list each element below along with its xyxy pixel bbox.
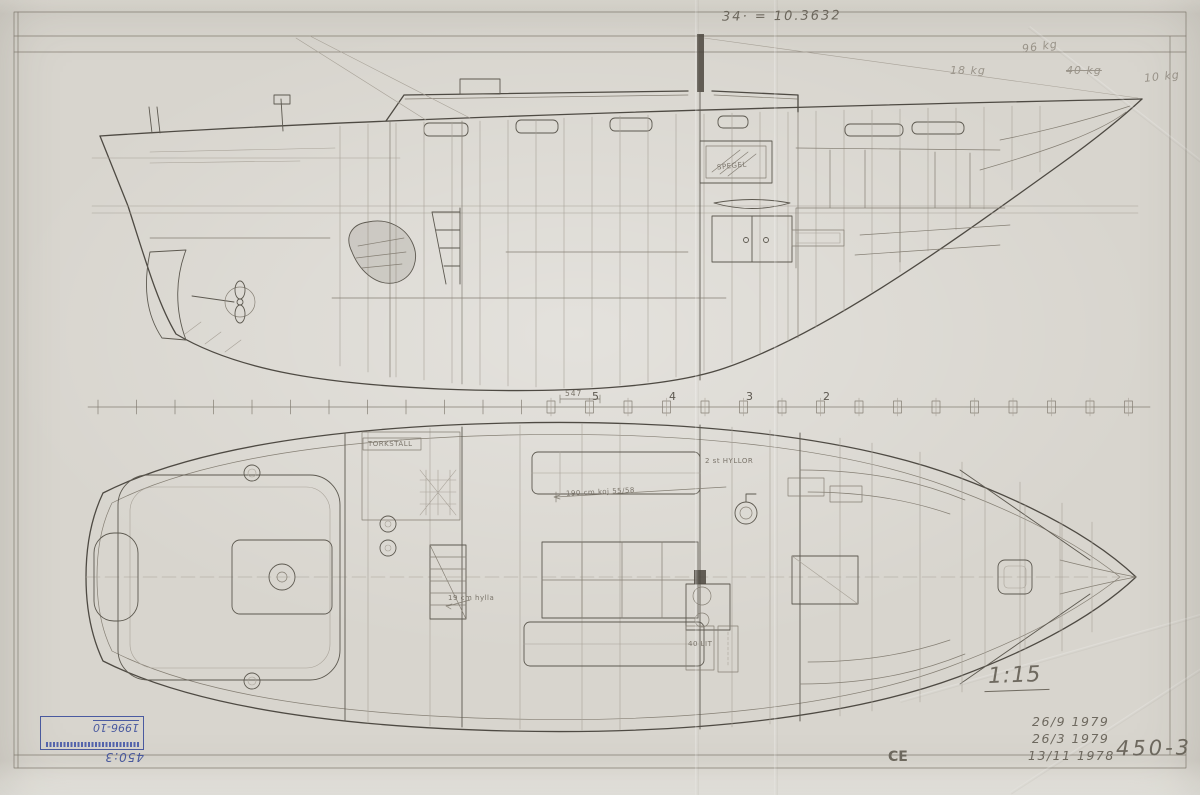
drawing-number: 450-3 (1116, 735, 1192, 760)
drawing-date: 13/11 1978 (1028, 748, 1115, 763)
plan-view-drawing (86, 422, 1136, 731)
station-line (88, 395, 1150, 416)
toilet-room (362, 432, 460, 556)
shelf-dim-label: 19 cm hylla (448, 594, 494, 602)
station-number: 3 (746, 390, 754, 403)
stamp-number: 450:3 (40, 750, 144, 764)
drawing-sheet: 34· = 10.3632 96 kg 18 kg 40 kg 10 kg 1:… (0, 0, 1200, 795)
profile-view-drawing (92, 34, 1142, 391)
stairs-plan (430, 545, 466, 619)
mast (697, 34, 704, 92)
engine (349, 221, 416, 283)
tank-label: 40 LIT (688, 640, 712, 648)
revision-date: 26/3 1979 (1032, 731, 1109, 746)
border-frame (14, 12, 1186, 768)
station-number: 5 (592, 390, 600, 403)
stamp-printed-text (45, 742, 139, 747)
chart-table (788, 478, 862, 604)
station-dimension: 547 (565, 389, 582, 398)
cupboard (712, 200, 792, 263)
stamp-box: 1996-10 (40, 716, 144, 750)
weight-note-struck: 40 kg (1066, 64, 1102, 77)
scale-label: 1:15 (984, 662, 1050, 692)
designer-monogram: CE (888, 749, 908, 765)
archive-stamp: 450:3 1996-10 (40, 716, 144, 765)
shelves-label: 2 st HYLLOR (705, 457, 753, 465)
station-number: 4 (669, 390, 677, 403)
revision-date: 26/9 1979 (1032, 714, 1109, 729)
station-number: 2 (823, 390, 831, 403)
drying-rack-label: TORKSTÄLL (368, 440, 413, 448)
top-formula-note: 34· = 10.3632 (722, 8, 842, 24)
saloon (524, 452, 704, 666)
cabin-windows (424, 116, 964, 136)
stamp-year: 1996-10 (93, 720, 139, 734)
weight-note: 18 kg (950, 64, 986, 77)
